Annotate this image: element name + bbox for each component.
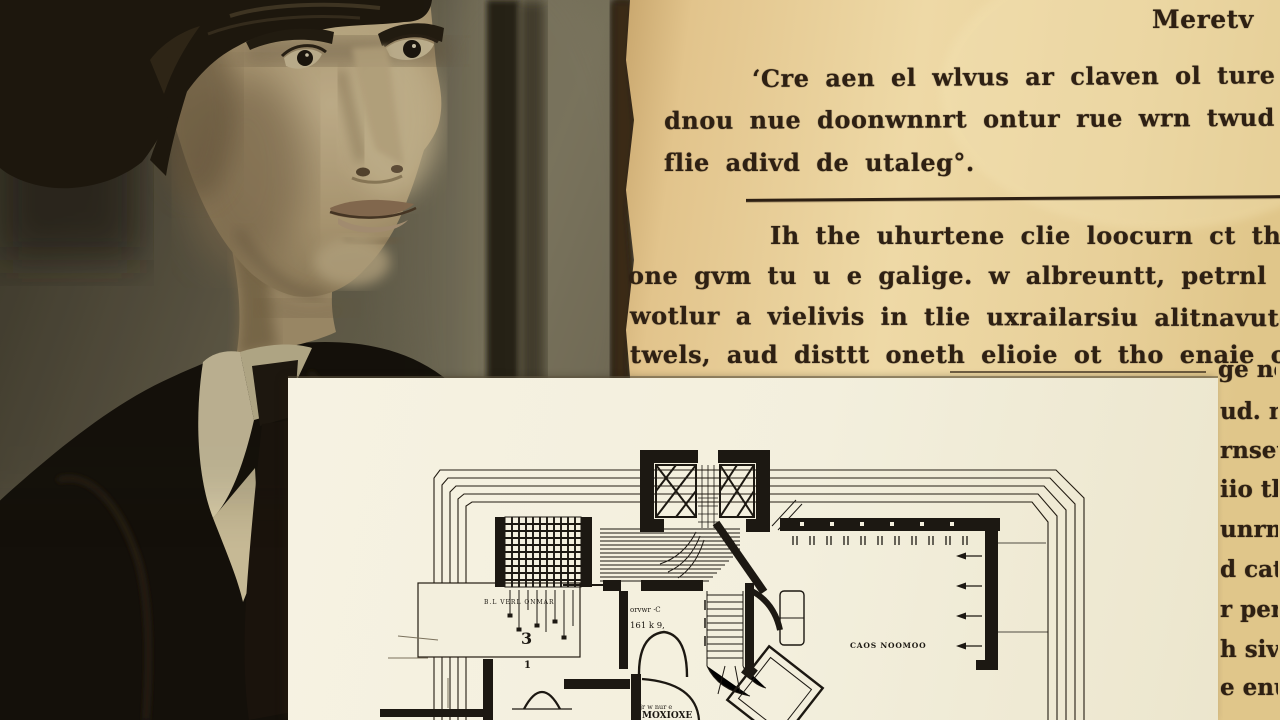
page-edge-fragment: e enu — [1220, 674, 1278, 701]
page-header: Meretv — [1152, 5, 1254, 34]
dim-digit: 3 — [521, 629, 532, 648]
page-edge-fragment: unrn — [1220, 516, 1278, 543]
page-text-line: dnou nue doonwnnrt ontur rue wrn twud do… — [664, 102, 1280, 135]
right-wall — [956, 518, 1048, 670]
page-text-line: flie adivd de utaleg°. — [664, 148, 975, 177]
page-text-line: twels, aud disttt oneth elioie ot tho en… — [630, 340, 1280, 369]
room-label: orvwr ·C — [630, 606, 661, 614]
grid-hatch-block — [495, 517, 592, 587]
top-wall — [780, 518, 1000, 545]
winder-steps — [660, 532, 704, 578]
page-edge-fragment: d cat — [1220, 556, 1278, 583]
room-label: 161 k 9, — [630, 621, 665, 631]
page-text-line: Ih the uhurtene clie loocurn ct the ot a… — [770, 221, 1280, 250]
floorplan-card: B.L VERL ONMAR 3 1 — [288, 378, 1218, 720]
page-text-line: ‘Cre aen el wlvus ar claven ol ture ar a — [752, 60, 1280, 93]
room-label-large: CAOS NOOMOO — [850, 641, 926, 650]
door-leaf — [780, 591, 804, 645]
page-edge-fragment: h siv — [1220, 636, 1278, 663]
page-edge-fragment: rnseu — [1220, 437, 1278, 464]
door-arch — [639, 632, 687, 677]
dim-digit-2: 1 — [524, 660, 531, 671]
page-text-line: one gvm tu u e galige. w albreuntt, petr… — [628, 261, 1280, 290]
arrow-annotations — [960, 543, 1048, 646]
room-label: jr w nur e — [639, 703, 672, 711]
cutoff-line — [950, 371, 1206, 373]
hatched-block — [640, 450, 802, 578]
dim-row-label: B.L VERL ONMAR — [484, 599, 555, 606]
room-label: MOXIOXE — [642, 711, 693, 720]
page-edge-fragment: ge nol — [1218, 356, 1276, 383]
tick-marks — [793, 536, 967, 545]
vintage-collage: Meretv ‘Cre aen el wlvus ar claven ol tu… — [0, 0, 1280, 720]
page-edge-fragment: r per- — [1220, 596, 1278, 623]
floorplan-drawing: B.L VERL ONMAR 3 1 — [288, 378, 1218, 720]
page-edge-fragment: ud. n — [1220, 398, 1278, 425]
page-edge-fragment: iio th — [1220, 476, 1278, 503]
page-text-line: wotlur a vielivis in tlie uxrailarsiu al… — [630, 301, 1280, 332]
striped-corridor — [600, 529, 740, 581]
